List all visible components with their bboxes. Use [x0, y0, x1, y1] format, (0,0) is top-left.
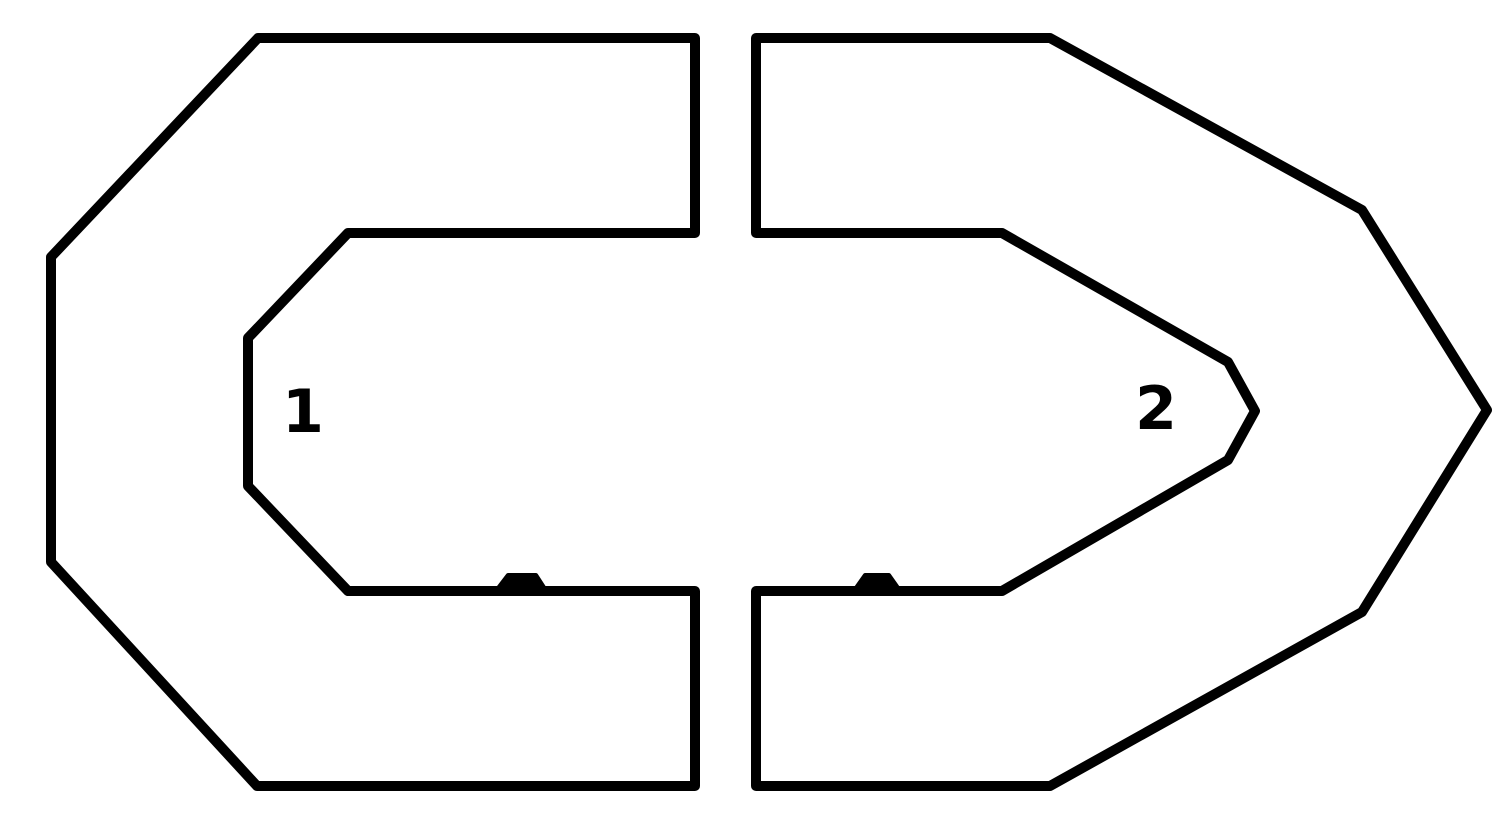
section-label-2: 2 [1135, 374, 1177, 444]
section-label-1: 1 [282, 377, 324, 447]
track-section-1-shape [51, 38, 695, 786]
track-diagram: 1 2 [0, 0, 1502, 825]
diagram-canvas: 1 2 [0, 0, 1502, 825]
track-section-2-shape [756, 38, 1487, 786]
bump-marker-left [495, 575, 547, 592]
bump-marker-right [853, 575, 901, 592]
